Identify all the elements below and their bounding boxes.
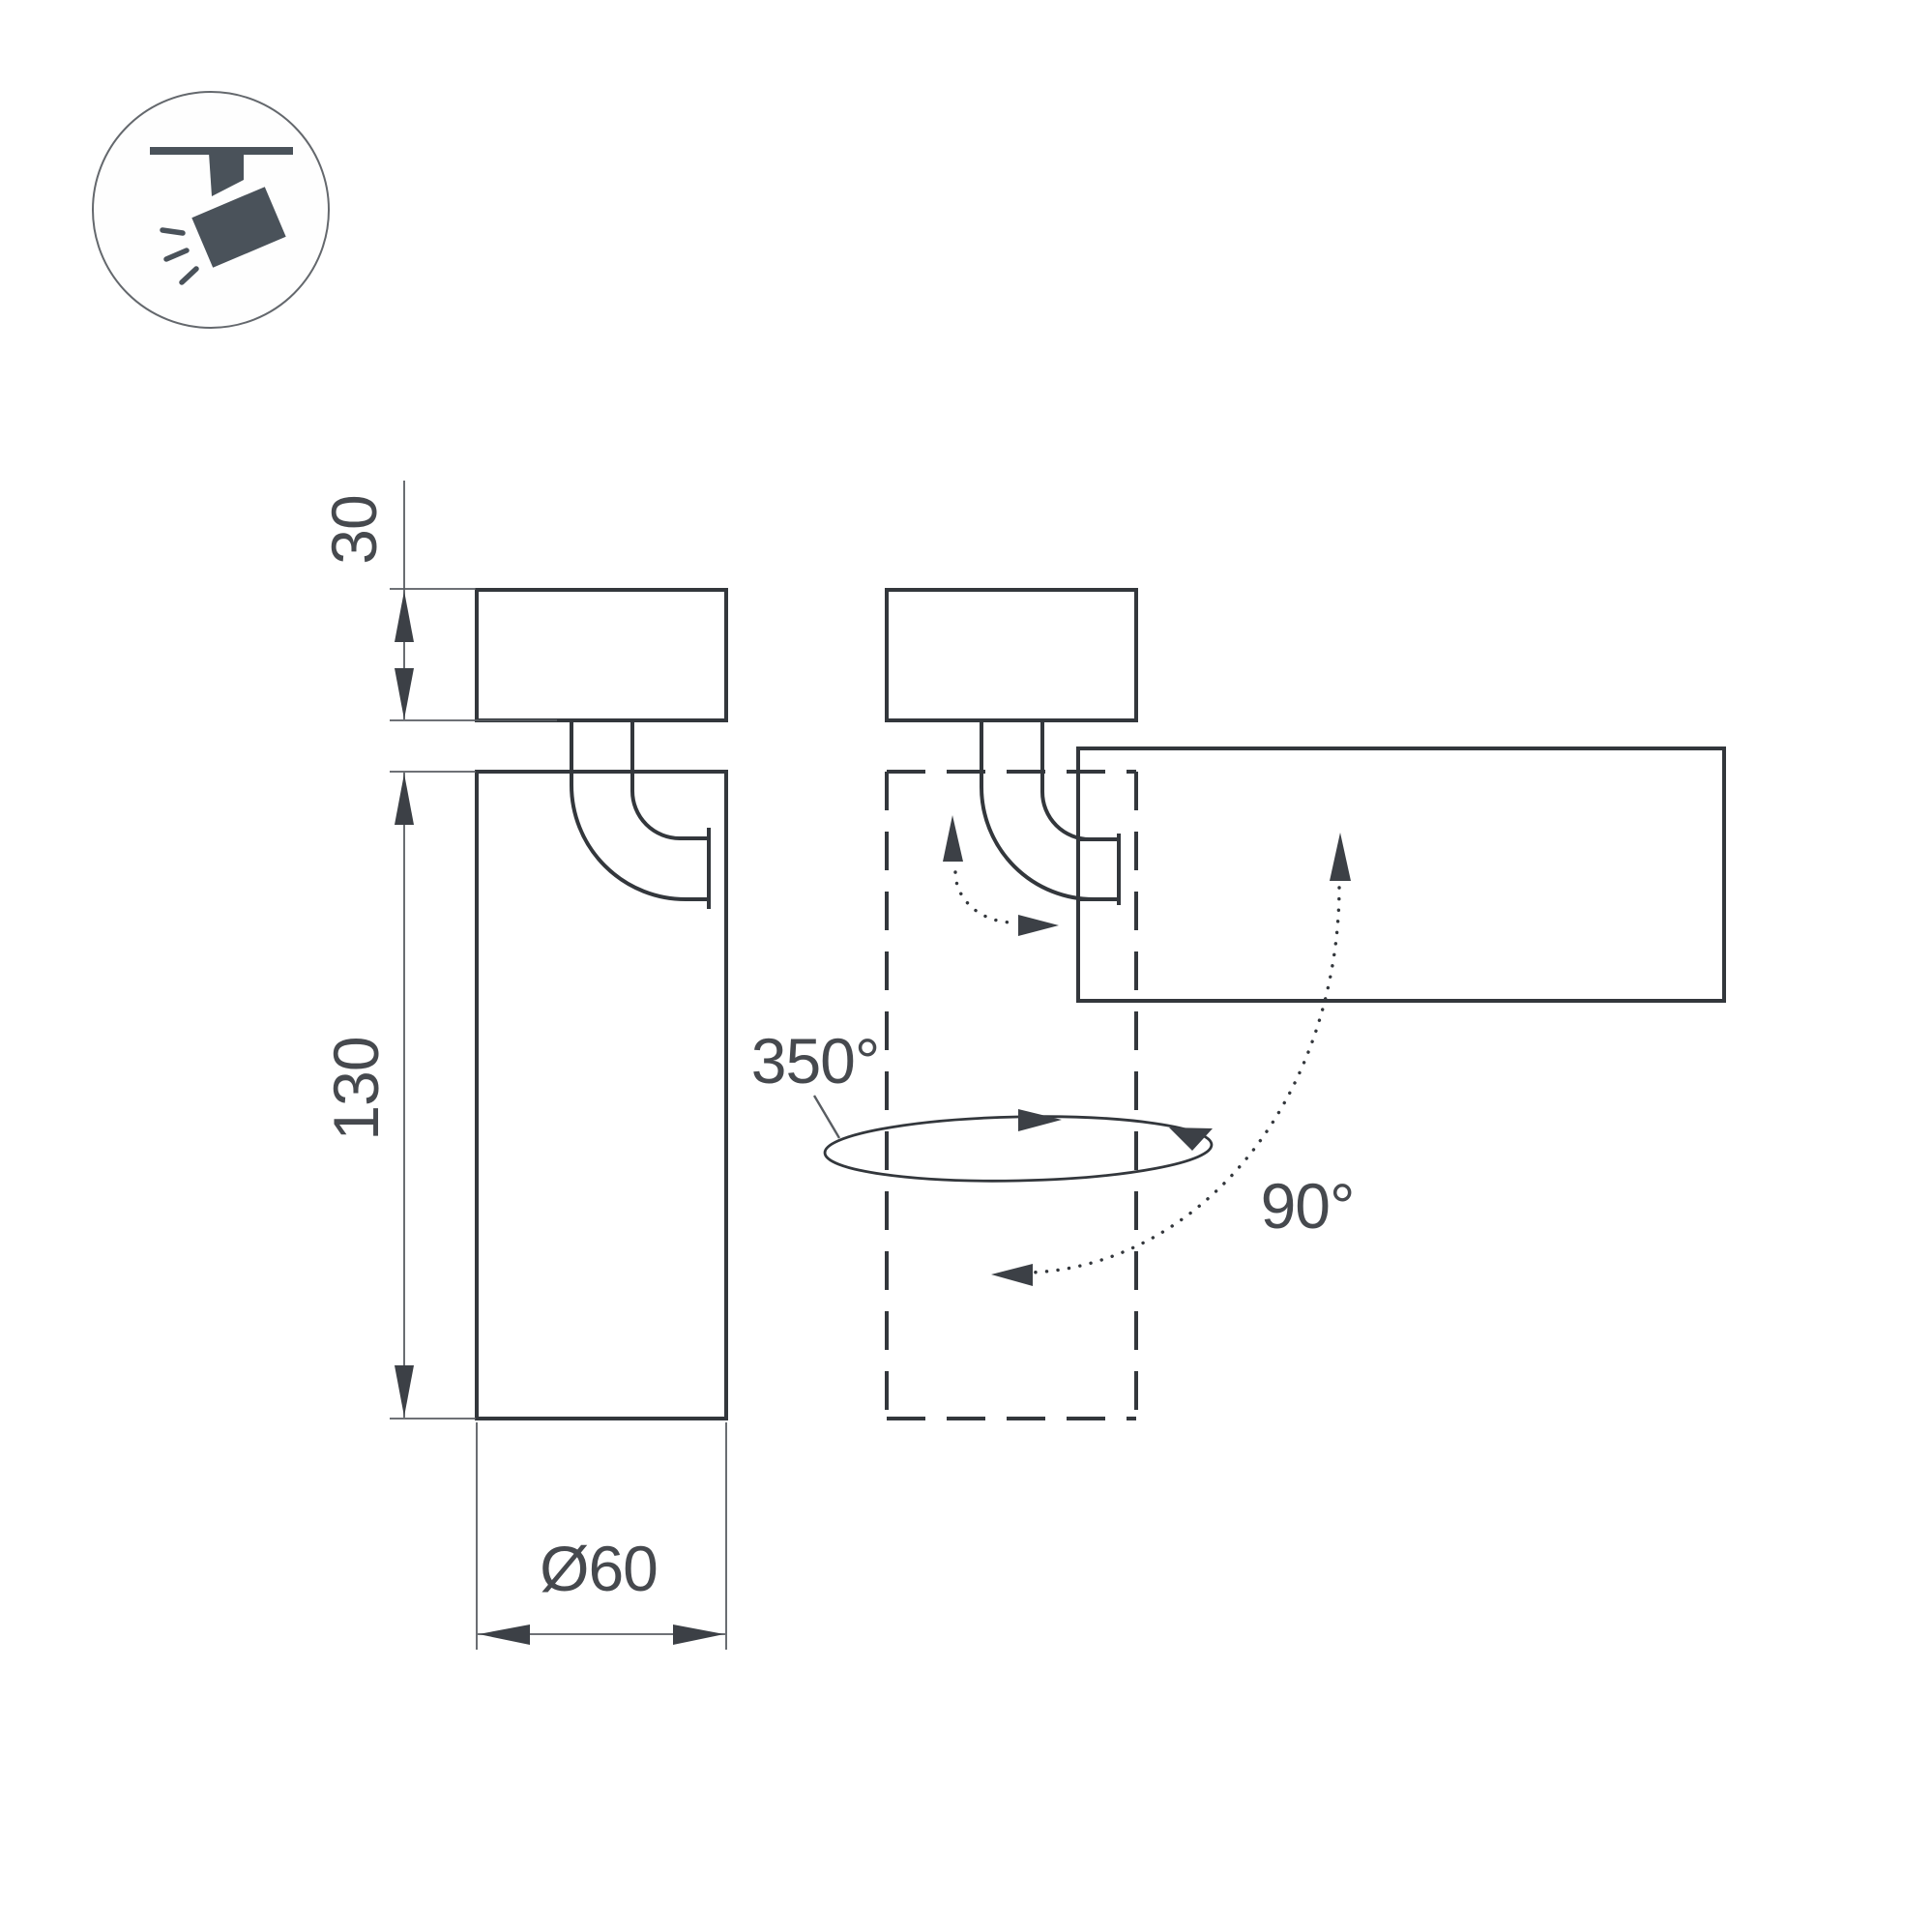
rotation-arrow-end — [1169, 1127, 1213, 1151]
rotation-350-indicator: 350° — [751, 1025, 1213, 1185]
label-rotation-angle: 350° — [751, 1025, 880, 1097]
label-tilt-angle: 90° — [1261, 1170, 1355, 1242]
tilt-direction-indicator — [943, 815, 1059, 936]
tilt-90-indicator: 90° — [991, 833, 1354, 1286]
dimension-d60: Ø60 — [477, 1422, 726, 1650]
product-icon — [93, 92, 329, 328]
cylinder-body-front — [477, 772, 726, 1419]
tilt-arc-left-arrow — [991, 1264, 1033, 1286]
label-base-height: 30 — [318, 495, 390, 564]
label-diameter: Ø60 — [540, 1533, 658, 1604]
technical-drawing-page: 30 130 Ø60 — [0, 0, 1932, 1932]
rotation-arrow-top — [1018, 1109, 1062, 1131]
front-view — [477, 590, 726, 1419]
rotated-view — [887, 590, 1724, 1419]
ghost-body-dashed — [887, 772, 1136, 1419]
mounting-base-front — [477, 590, 726, 720]
dimension-130: 130 — [320, 772, 476, 1419]
label-body-height: 130 — [320, 1037, 392, 1140]
tilt-up-arrow — [943, 815, 963, 862]
tilt-arc-up-arrow — [1330, 833, 1351, 881]
mounting-base-rotated — [887, 590, 1136, 720]
tilt-right-arrow — [1018, 915, 1059, 936]
cylinder-body-tilted — [1078, 748, 1724, 1001]
technical-drawing: 30 130 Ø60 — [0, 0, 1932, 1932]
